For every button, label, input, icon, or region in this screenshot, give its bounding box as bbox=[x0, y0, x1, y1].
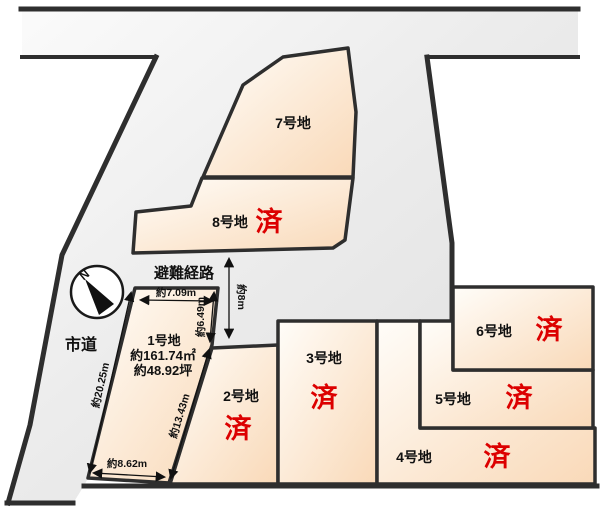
evacuation-width-label: 約8m bbox=[235, 284, 248, 310]
lot-6-label: 6号地 bbox=[476, 323, 512, 339]
plot-map-canvas: 約7.09m 約6.49m 約20.25m 約13.43m 約8.62m 約8m… bbox=[0, 0, 600, 509]
lot-2-status: 済 bbox=[225, 413, 253, 444]
lot-4-label: 4号地 bbox=[396, 449, 432, 465]
plot-map: 約7.09m 約6.49m 約20.25m 約13.43m 約8.62m 約8m… bbox=[0, 0, 600, 509]
lot-1-area-m2: 約161.74㎡ bbox=[130, 348, 196, 363]
lot-5-status: 済 bbox=[506, 382, 534, 413]
lot-7-label: 7号地 bbox=[275, 115, 311, 131]
lot-6-status: 済 bbox=[536, 314, 564, 345]
lot-4-status: 済 bbox=[484, 441, 512, 472]
lot-5-label: 5号地 bbox=[435, 391, 471, 407]
lot-3-label: 3号地 bbox=[306, 350, 342, 366]
city-road-label: 市道 bbox=[65, 335, 97, 354]
lot-8-label: 8号地 bbox=[212, 214, 248, 230]
lot-6 bbox=[453, 287, 593, 370]
evacuation-route-label: 避難経路 bbox=[154, 264, 215, 282]
dim-top-label: 約7.09m bbox=[156, 286, 196, 299]
dim-bottom-label: 約8.62m bbox=[107, 457, 147, 470]
lot-1-label: 1号地 bbox=[147, 333, 180, 348]
lot-1-area-tsubo: 約48.92坪 bbox=[134, 363, 193, 378]
dim-right-upper-label: 約6.49m bbox=[194, 297, 207, 337]
compass: N bbox=[71, 266, 123, 318]
lot-3-status: 済 bbox=[311, 382, 339, 413]
lot-8-status: 済 bbox=[256, 206, 284, 237]
lot-2-label: 2号地 bbox=[223, 388, 259, 404]
